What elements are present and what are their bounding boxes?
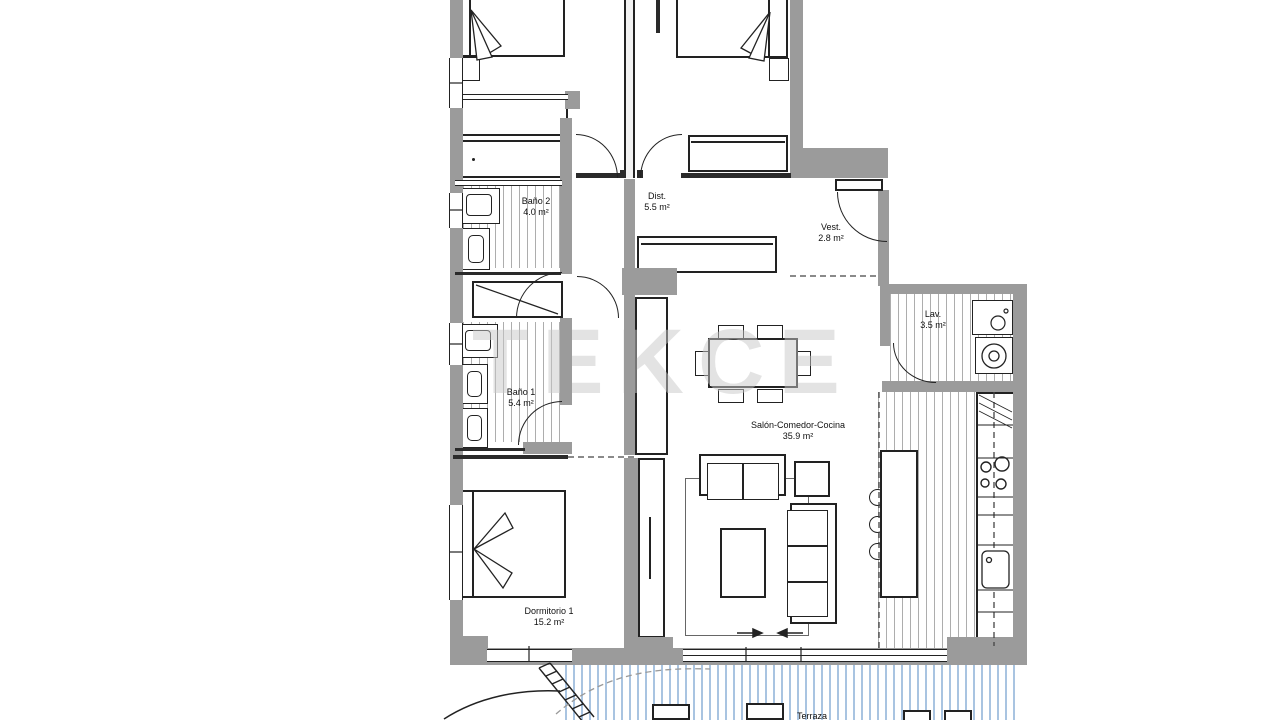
room-label-dist: Dist. 5.5 m² [644,191,670,214]
room-area: 3.5 m² [920,320,946,331]
washer-drum [982,344,1006,368]
dashed-boundaries [568,276,994,648]
room-area: 15.2 m² [524,617,573,628]
room-label-terraza: Terraza [797,711,827,720]
shower-diagonal [476,285,558,314]
floor-plan: TEKCE [0,0,1280,720]
kitchen-sink [982,551,1009,588]
room-name: Baño 1 [507,387,536,398]
garden-curve [444,669,710,719]
room-name: Vest. [818,222,844,233]
room-label-bano1: Baño 1 5.4 m² [507,387,536,410]
stair-hatch [539,663,594,720]
room-name: Dist. [644,191,670,202]
drainer-lines [979,395,1012,428]
room-area: 35.9 m² [751,431,845,442]
room-label-bano2: Baño 2 4.0 m² [522,196,551,219]
room-name: Lav. [920,309,946,320]
room-name: Dormitorio 1 [524,606,573,617]
room-area: 5.5 m² [644,202,670,213]
cooktop-burners [981,457,1009,489]
room-label-salon: Salón-Comedor-Cocina 35.9 m² [751,420,845,443]
laundry-sink-basin [991,309,1008,330]
room-label-lav: Lav. 3.5 m² [920,309,946,332]
linework-overlay [0,0,1280,720]
room-label-vest: Vest. 2.8 m² [818,222,844,245]
room-label-dorm1: Dormitorio 1 15.2 m² [524,606,573,629]
room-area: 5.4 m² [507,398,536,409]
room-name: Terraza [797,711,827,720]
sliding-door-arrows [737,629,803,637]
room-name: Salón-Comedor-Cocina [751,420,845,431]
room-name: Baño 2 [522,196,551,207]
room-area: 4.0 m² [522,207,551,218]
room-area: 2.8 m² [818,233,844,244]
